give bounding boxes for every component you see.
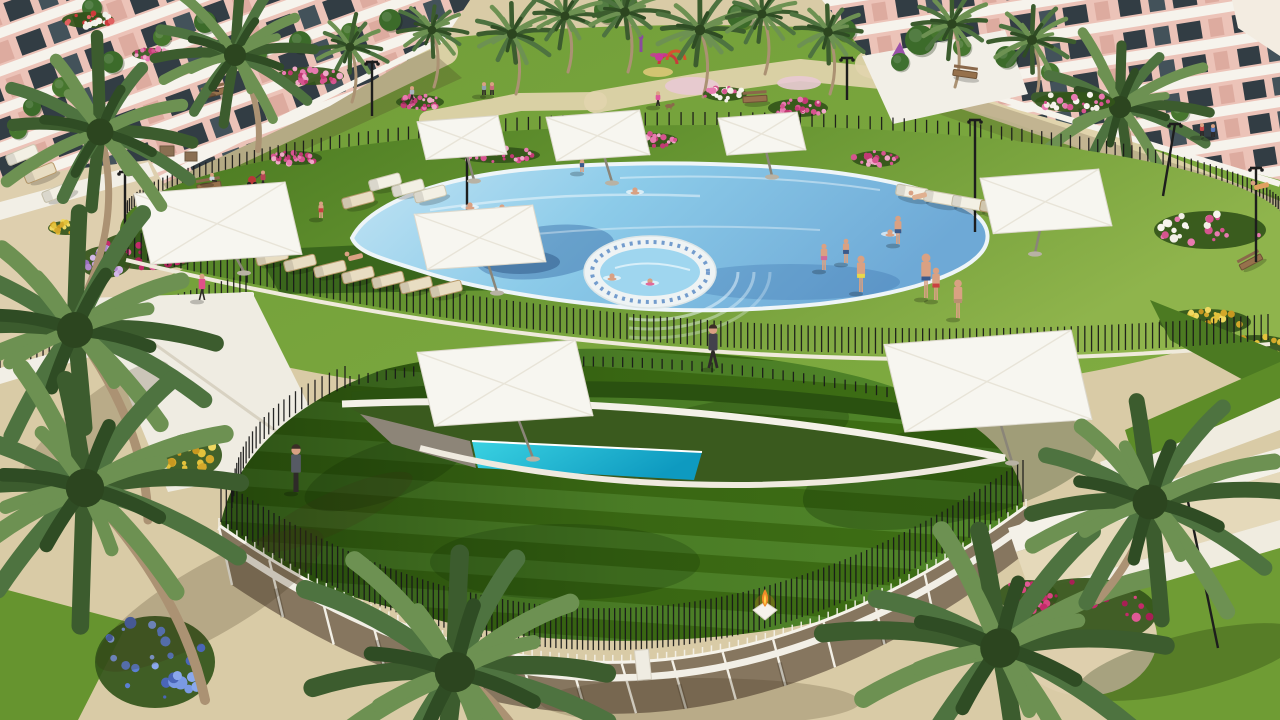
lamp-head <box>1167 124 1171 128</box>
swimsuit <box>895 229 901 233</box>
palm-crown-core <box>66 469 104 507</box>
person-shadow <box>284 492 298 497</box>
ground-circle <box>777 76 821 90</box>
person-shadow <box>480 95 494 100</box>
palm-crown-core <box>947 19 957 29</box>
bush-highlight <box>382 12 392 22</box>
palm-crown-core <box>560 11 569 20</box>
parasol-base <box>605 180 619 185</box>
bush-highlight <box>343 25 351 33</box>
lamp-head <box>1260 168 1264 172</box>
bush-highlight <box>893 55 901 63</box>
person-shadow <box>200 183 214 188</box>
bush-highlight <box>85 1 94 10</box>
palm-crown-core <box>620 7 630 17</box>
palm-crown-core <box>1027 35 1037 45</box>
palm-crown-core <box>507 29 517 39</box>
person-shadow <box>834 263 848 268</box>
lamp-head <box>839 58 843 62</box>
bush-highlight <box>104 54 114 64</box>
swimsuit <box>932 284 939 288</box>
palm-crown-core <box>57 312 93 348</box>
swimsuit <box>843 250 849 254</box>
person-shadow <box>701 368 715 373</box>
palm-frond <box>97 36 100 132</box>
lamp-head <box>851 58 855 62</box>
swimsuit <box>821 256 827 260</box>
swimsuit <box>580 163 584 167</box>
parasol-base <box>1028 251 1042 256</box>
bush-highlight <box>909 29 923 43</box>
swimsuit <box>921 277 930 281</box>
facade-door <box>634 649 651 680</box>
lamp-head <box>364 62 368 66</box>
lamp-head <box>1179 124 1183 128</box>
person-shadow <box>646 106 660 111</box>
parasol-base <box>237 270 251 275</box>
architectural-render-aerial-view <box>0 0 1280 720</box>
bush-highlight <box>292 34 302 44</box>
person-shadow <box>946 318 960 323</box>
kids-pool-water <box>600 248 700 296</box>
palm-crown-core <box>823 27 833 37</box>
palm-frond <box>80 488 85 626</box>
palm-crown-core <box>980 628 1020 668</box>
palm-crown-core <box>435 652 475 692</box>
person-shadow <box>309 218 323 223</box>
ground-circle <box>643 67 673 77</box>
person-shadow <box>400 100 414 105</box>
parasol-base <box>526 456 540 461</box>
parasol-base <box>490 290 504 295</box>
palm-crown-core <box>345 42 354 51</box>
palm-crown-core <box>757 9 766 18</box>
palm-crown-core <box>695 25 706 36</box>
swimsuit <box>857 274 865 278</box>
bush-highlight <box>55 80 64 89</box>
lamp-head <box>1248 168 1252 172</box>
person-shadow <box>886 244 900 249</box>
lamp-head <box>979 120 983 124</box>
person-shadow <box>570 172 584 177</box>
palm-crown-core <box>428 26 437 35</box>
bush-highlight <box>25 100 33 108</box>
palm-shadow-on-roof <box>430 524 700 600</box>
planter-box <box>185 152 197 161</box>
lamp-head <box>117 172 121 176</box>
person-shadow <box>812 270 826 275</box>
lamp-head <box>967 120 971 124</box>
palm-crown-core <box>1133 485 1168 520</box>
person-shadow <box>1201 137 1215 142</box>
parasol-base <box>467 178 481 183</box>
bench <box>742 90 770 108</box>
palm-crown-core <box>87 119 114 146</box>
person-shadow <box>849 292 863 297</box>
palm-crown-core <box>224 44 246 66</box>
swimsuit <box>954 299 962 303</box>
person-shadow <box>924 300 938 305</box>
parasol-base <box>765 174 779 179</box>
swimsuit <box>319 208 324 212</box>
lamp-head <box>376 62 380 66</box>
parasol-base <box>1005 460 1019 465</box>
person-shadow <box>190 300 204 305</box>
